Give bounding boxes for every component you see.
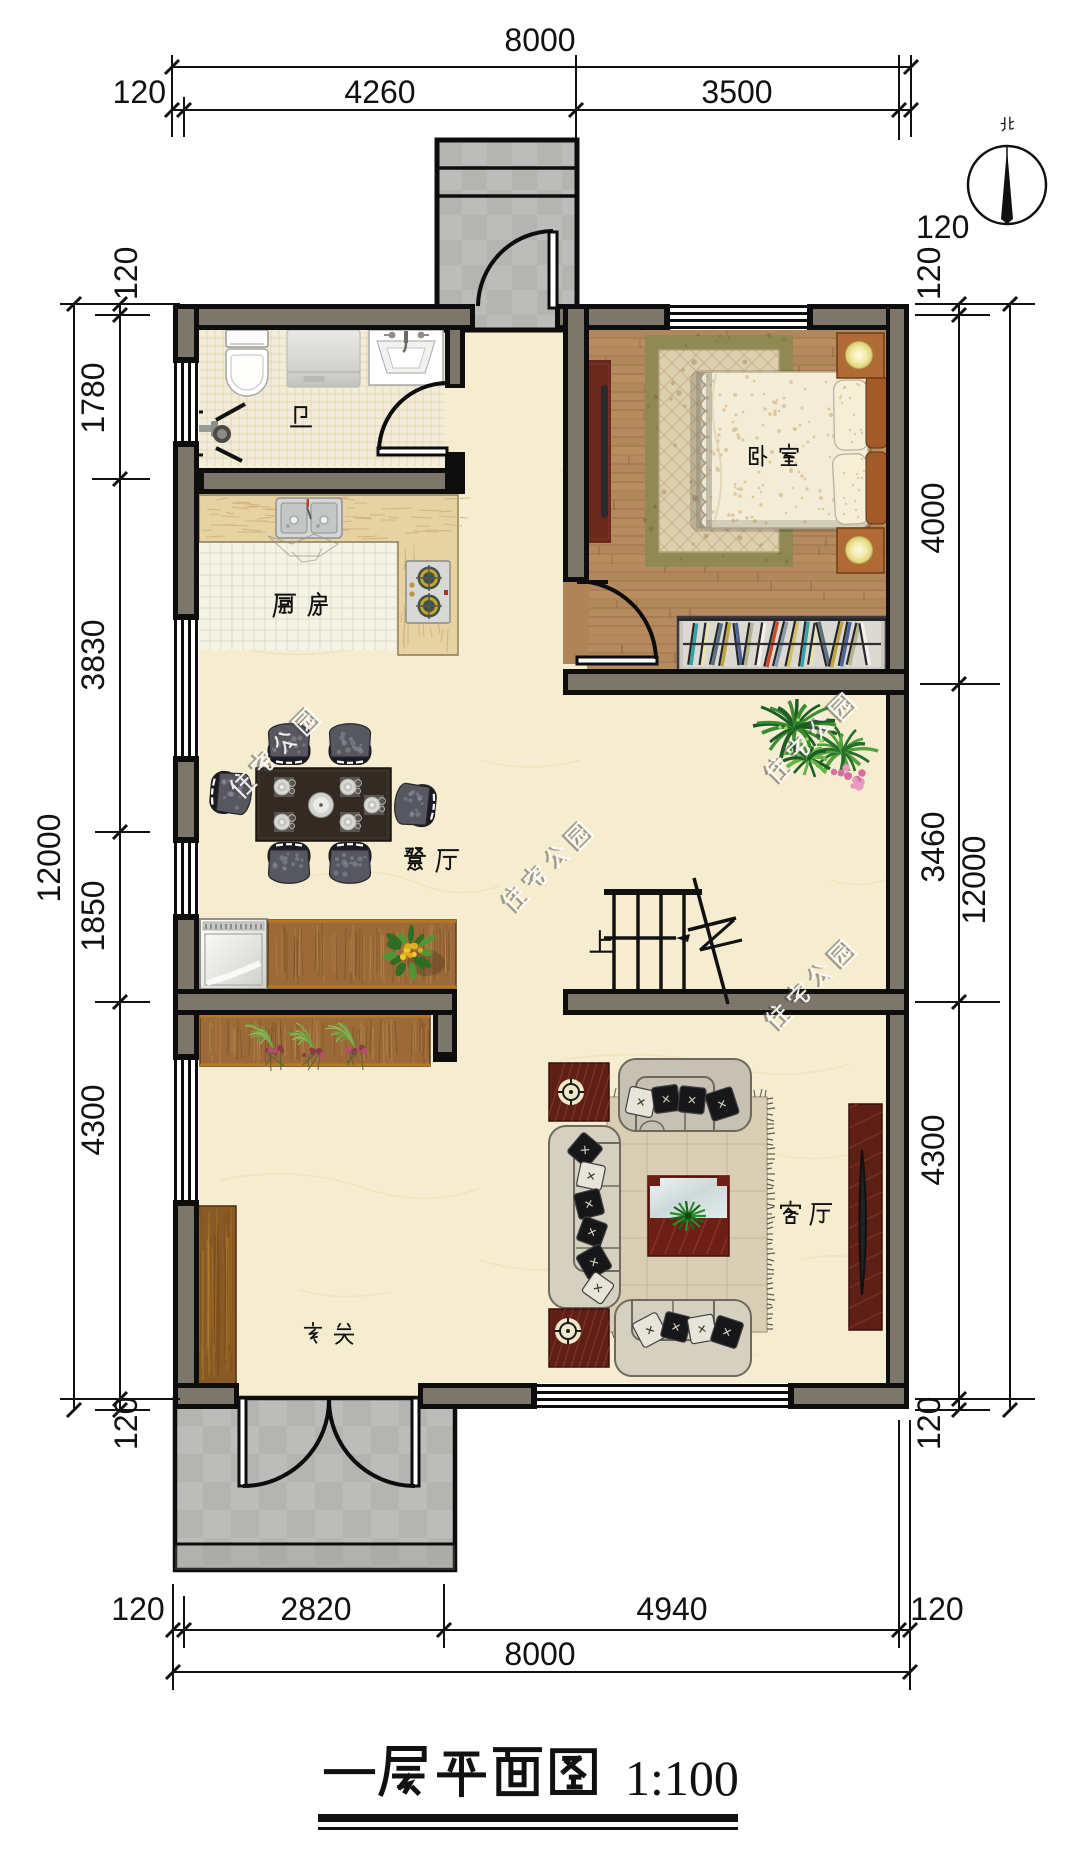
svg-text:120: 120	[911, 247, 947, 300]
svg-text:3460: 3460	[915, 811, 951, 882]
svg-text:1850: 1850	[75, 880, 111, 951]
svg-text:4260: 4260	[344, 74, 415, 110]
svg-text:4300: 4300	[75, 1084, 111, 1155]
svg-text:120: 120	[108, 247, 144, 300]
svg-text:2820: 2820	[280, 1591, 351, 1627]
svg-text:12000: 12000	[956, 836, 992, 925]
svg-text:120: 120	[113, 74, 166, 110]
svg-text:8000: 8000	[504, 1636, 575, 1672]
svg-text:120: 120	[911, 1397, 947, 1450]
svg-text:8000: 8000	[504, 22, 575, 58]
svg-text:3500: 3500	[701, 74, 772, 110]
svg-text:120: 120	[910, 1591, 963, 1627]
svg-text:12000: 12000	[31, 814, 67, 903]
svg-text:120: 120	[916, 209, 969, 245]
svg-text:1:100: 1:100	[625, 1750, 739, 1806]
svg-text:4940: 4940	[636, 1591, 707, 1627]
svg-text:120: 120	[111, 1591, 164, 1627]
svg-text:4000: 4000	[915, 482, 951, 553]
svg-text:120: 120	[108, 1397, 144, 1450]
svg-text:3830: 3830	[75, 619, 111, 690]
svg-text:4300: 4300	[915, 1114, 951, 1185]
svg-text:1780: 1780	[75, 362, 111, 433]
